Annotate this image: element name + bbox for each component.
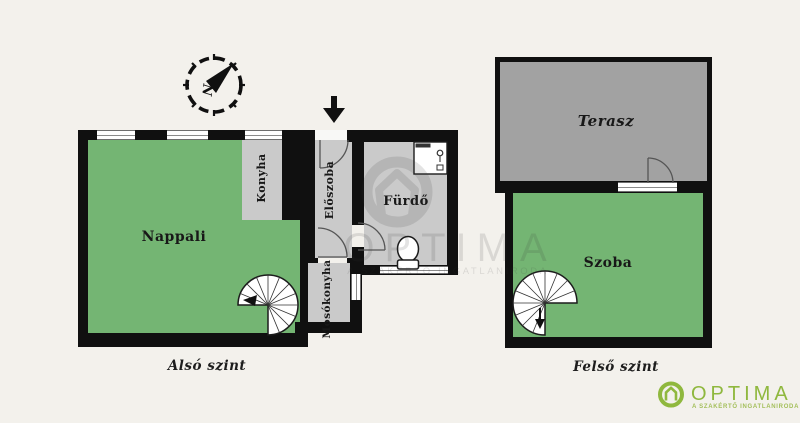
floor-plan-image: N — [0, 0, 800, 423]
optima-logo-house-icon — [656, 380, 686, 410]
optima-logo-tagline: A SZAKÉRTŐ INGATLANIRODA — [692, 404, 799, 410]
watermark-tagline: A SZAKÉRTŐ INGATLANIRODA — [347, 266, 548, 277]
optima-logo-brand: OPTIMA — [691, 383, 792, 406]
watermark: OPTIMA A SZAKÉRTŐ INGATLANIRODA — [0, 0, 800, 423]
watermark-brand: OPTIMA — [343, 226, 556, 270]
